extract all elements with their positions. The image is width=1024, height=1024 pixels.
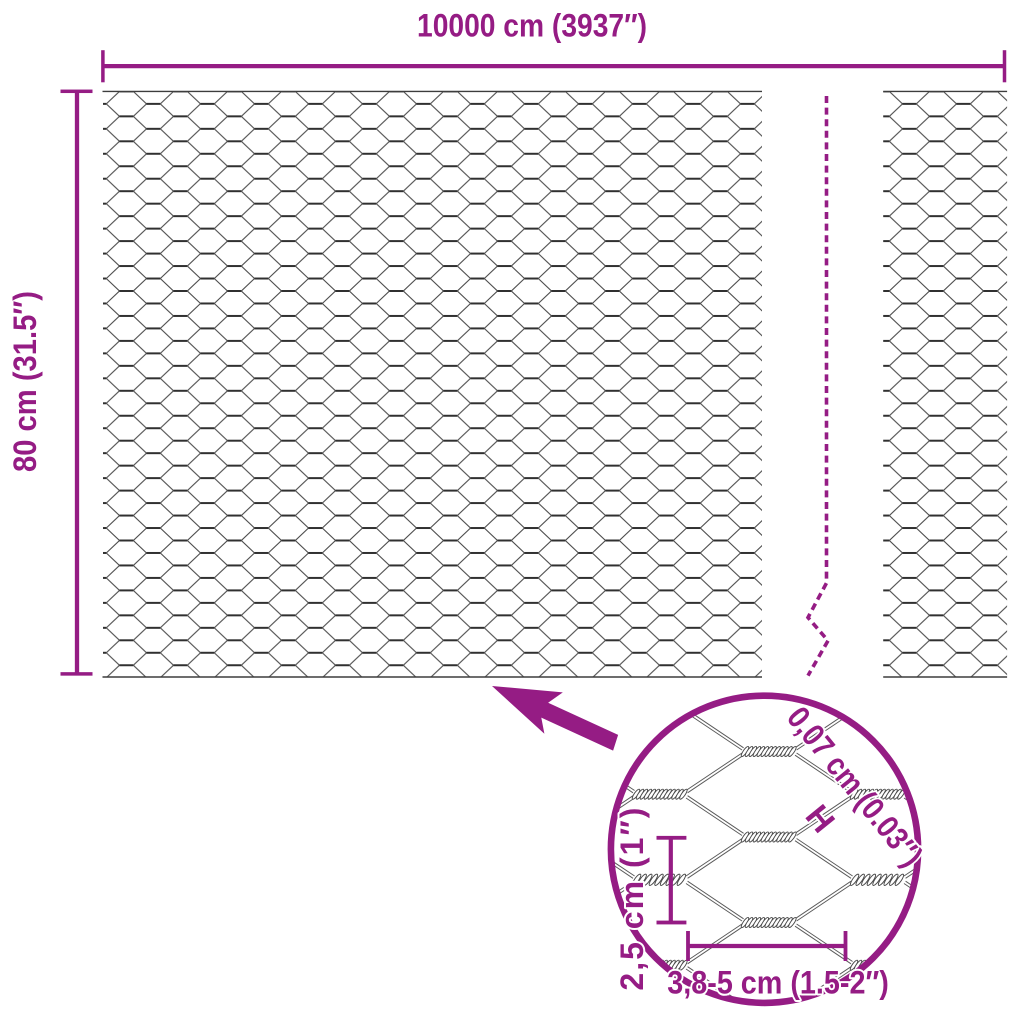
svg-text:3,8-5 cm (1.5-2″): 3,8-5 cm (1.5-2″): [667, 965, 889, 1001]
svg-text:10000 cm (3937″): 10000 cm (3937″): [417, 7, 647, 43]
svg-text:80 cm (31.5″): 80 cm (31.5″): [7, 291, 43, 472]
svg-text:2,5 cm (1″): 2,5 cm (1″): [614, 808, 650, 991]
